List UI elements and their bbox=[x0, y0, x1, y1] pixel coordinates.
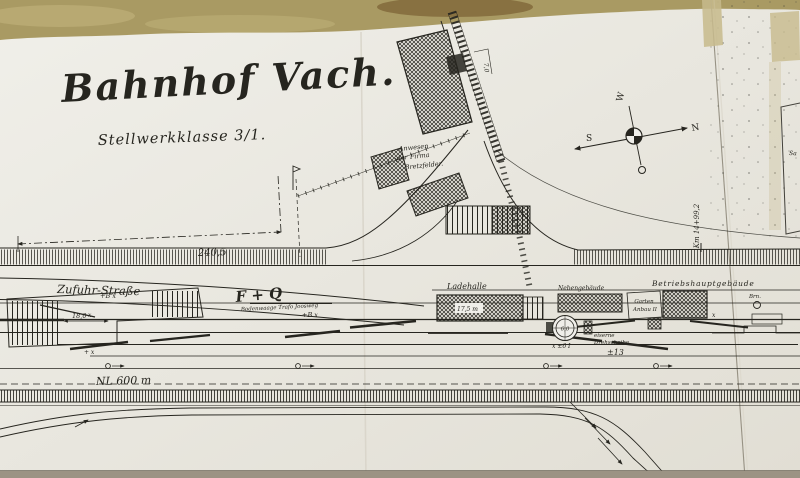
main-line-band-right bbox=[574, 250, 800, 265]
well-label: Brn. bbox=[748, 294, 761, 300]
adjacent-sheet-text: Sa bbox=[789, 150, 797, 157]
nebengebaeude-label: Nebengebäude bbox=[557, 285, 605, 292]
km-marker-label: Km 14+99,2 bbox=[693, 203, 701, 249]
scanned-plan-photo: Sa Bahnhof Vach. Stellwerkklasse 3/1. N … bbox=[0, 0, 800, 478]
ladehalle-annex bbox=[523, 297, 543, 319]
hauptgebaeude-building bbox=[663, 291, 707, 318]
turntable-label-line1: eiserne bbox=[594, 333, 615, 339]
turntable-label-line2: Drehscheibe bbox=[593, 340, 630, 346]
betriebshauptgebaeude-label: Betriebshauptgebäude bbox=[651, 279, 755, 288]
gradient-annotation: ±13 bbox=[607, 348, 624, 357]
switch-annotation: +B x bbox=[302, 311, 318, 319]
turntable-abutment bbox=[546, 322, 553, 333]
ladehalle-dimension: 17,5 m bbox=[457, 306, 478, 313]
path-width-dimension: 7,0 bbox=[482, 63, 490, 73]
hauptgebaeude-annex bbox=[648, 318, 661, 329]
shed-dimension-value: 18,0 bbox=[72, 312, 86, 320]
turntable-hut bbox=[584, 321, 592, 334]
main-line-band-left bbox=[0, 250, 326, 265]
plan-drawing: Sa Bahnhof Vach. Stellwerkklasse 3/1. N … bbox=[0, 0, 800, 478]
tape-piece bbox=[770, 11, 800, 62]
shed-building-dark bbox=[492, 206, 530, 234]
point-annotation: x ±6 I bbox=[552, 343, 571, 350]
main-line-band-bottom bbox=[0, 390, 800, 402]
anbau-label: Anbau II bbox=[632, 307, 658, 313]
tape-smear bbox=[769, 62, 781, 230]
loading-shed-hatch bbox=[11, 301, 61, 345]
wood-grain-streak bbox=[145, 15, 335, 33]
compass-s-label: S bbox=[586, 134, 592, 144]
ladehalle-label: Ladehalle bbox=[446, 282, 487, 291]
nebengebaeude-building bbox=[558, 294, 622, 312]
table-edge-strip bbox=[0, 471, 800, 478]
bottom-table-edge bbox=[0, 471, 800, 478]
turntable-diameter: 6,0 bbox=[561, 327, 570, 333]
tape-piece bbox=[702, 0, 723, 47]
loading-shed-hatch bbox=[150, 291, 200, 317]
useful-length-label: NL 600 m bbox=[95, 374, 152, 388]
garten-label: Garten bbox=[634, 299, 654, 305]
plus-x-mark: + x bbox=[84, 349, 95, 356]
